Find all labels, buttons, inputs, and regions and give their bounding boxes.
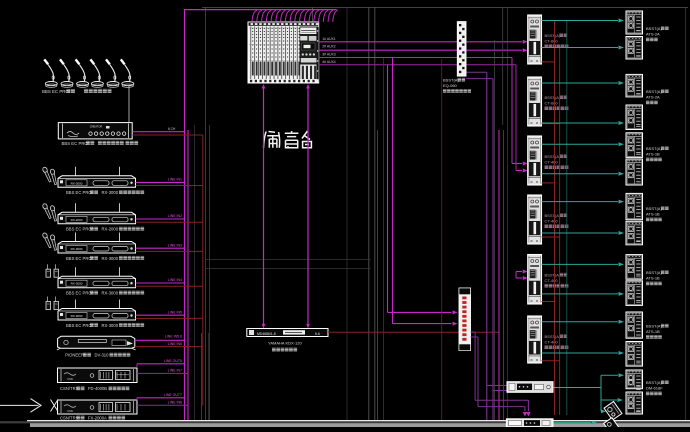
svg-text:CT-600: CT-600 xyxy=(545,101,559,106)
svg-text:PIONEER/: PIONEER/ xyxy=(65,353,86,358)
svg-text:6.6: 6.6 xyxy=(315,332,320,336)
svg-text:RX-3000: RX-3000 xyxy=(102,323,119,328)
svg-text:CSN/TRS: CSN/TRS xyxy=(60,416,79,421)
svg-text:FD-4000B: FD-4000B xyxy=(88,386,107,391)
svg-text:BSST(A): BSST(A) xyxy=(545,95,561,100)
svg-text:DM-618F: DM-618F xyxy=(646,386,663,391)
svg-text:4# AUX4: 4# AUX4 xyxy=(322,60,335,64)
svg-text:ATS-1B: ATS-1B xyxy=(646,276,660,281)
svg-text:LINE IN3: LINE IN3 xyxy=(168,243,182,247)
svg-text:1# AUX1: 1# AUX1 xyxy=(322,37,335,41)
svg-text:DV-310: DV-310 xyxy=(95,353,110,358)
svg-text:CT-400: CT-400 xyxy=(545,219,559,224)
svg-text:BSST(A): BSST(A) xyxy=(646,324,662,329)
svg-text:RX-3000: RX-3000 xyxy=(71,247,83,251)
svg-text:RX-3000: RX-3000 xyxy=(71,314,83,318)
svg-text:LINE IN6: LINE IN6 xyxy=(168,342,182,346)
svg-text:BSST(A): BSST(A) xyxy=(646,206,662,211)
svg-text:MD4686/1-8: MD4686/1-8 xyxy=(257,332,276,336)
svg-text:CT-600: CT-600 xyxy=(545,39,559,44)
svg-text:LINE OUT7: LINE OUT7 xyxy=(164,393,182,397)
svg-text:LINE IN1: LINE IN1 xyxy=(168,178,182,182)
svg-text:RX-3000: RX-3000 xyxy=(102,291,119,296)
svg-text:FX-2000A: FX-2000A xyxy=(88,416,107,421)
svg-text:CSN/TRS: CSN/TRS xyxy=(60,386,79,391)
svg-text:LINE IN2: LINE IN2 xyxy=(168,214,182,218)
svg-text:BSST(A): BSST(A) xyxy=(646,89,662,94)
svg-text:BBS EC PRO/: BBS EC PRO/ xyxy=(66,227,94,232)
svg-text:BBS EC PRO/: BBS EC PRO/ xyxy=(66,190,94,195)
svg-text:2# AUX2: 2# AUX2 xyxy=(322,45,335,49)
svg-text:BBS EC PRO/: BBS EC PRO/ xyxy=(66,323,94,328)
svg-text:LINE IN8: LINE IN8 xyxy=(168,400,182,404)
svg-text:LINE IN5.6: LINE IN5.6 xyxy=(165,335,182,339)
svg-text:6 CH: 6 CH xyxy=(168,127,176,131)
svg-text:CSN: CSN xyxy=(67,409,73,413)
svg-text:LINE IN7: LINE IN7 xyxy=(168,368,182,372)
svg-text:RX-2000: RX-2000 xyxy=(102,227,119,232)
svg-text:BBS EC PRO/: BBS EC PRO/ xyxy=(66,291,94,296)
svg-text:LINE IN4: LINE IN4 xyxy=(168,278,182,282)
svg-text:BSST(A): BSST(A) xyxy=(646,270,662,275)
svg-text:CSN: CSN xyxy=(67,377,73,381)
svg-text:BSST(A): BSST(A) xyxy=(646,26,662,31)
svg-text:ATS-2A: ATS-2A xyxy=(646,32,660,37)
svg-text:CT-400: CT-400 xyxy=(545,340,559,345)
svg-text:EQ-060: EQ-060 xyxy=(443,83,458,88)
svg-text:YAMAHA KDX-120: YAMAHA KDX-120 xyxy=(268,341,302,346)
svg-text:CREATOR: CREATOR xyxy=(90,124,103,128)
svg-text:ATS-1B: ATS-1B xyxy=(646,329,660,334)
svg-text:BBS EC PRO/: BBS EC PRO/ xyxy=(62,141,90,146)
svg-text:LINE IN5: LINE IN5 xyxy=(168,310,182,314)
svg-text:BSST(A): BSST(A) xyxy=(646,146,662,151)
svg-text:BSST(A): BSST(A) xyxy=(443,78,459,83)
svg-text:ATS-2A: ATS-2A xyxy=(646,95,660,100)
svg-text:BSST(A): BSST(A) xyxy=(545,334,561,339)
svg-text:BSST(A): BSST(A) xyxy=(545,213,561,218)
svg-text:BSST(A): BSST(A) xyxy=(545,154,561,159)
svg-text:RX-3000: RX-3000 xyxy=(71,181,83,185)
svg-text:BSST(A): BSST(A) xyxy=(545,33,561,38)
svg-text:BSST(A): BSST(A) xyxy=(646,380,662,385)
svg-text:RX-3000: RX-3000 xyxy=(71,282,83,286)
svg-text:3# AUX3: 3# AUX3 xyxy=(322,53,335,57)
svg-text:BBS EC PRO/: BBS EC PRO/ xyxy=(66,256,94,261)
svg-text:RX-2000: RX-2000 xyxy=(71,218,83,222)
svg-text:RX-3000: RX-3000 xyxy=(102,190,119,195)
svg-text:CT-400: CT-400 xyxy=(545,160,559,165)
svg-text:RX-3000: RX-3000 xyxy=(102,256,119,261)
svg-text:CT-400: CT-400 xyxy=(545,278,559,283)
svg-text:BSST(A): BSST(A) xyxy=(545,273,561,278)
svg-text:ATS-1B: ATS-1B xyxy=(646,152,660,157)
svg-text:ATS-1B: ATS-1B xyxy=(646,212,660,217)
svg-text:LINE OUT5: LINE OUT5 xyxy=(164,359,182,363)
